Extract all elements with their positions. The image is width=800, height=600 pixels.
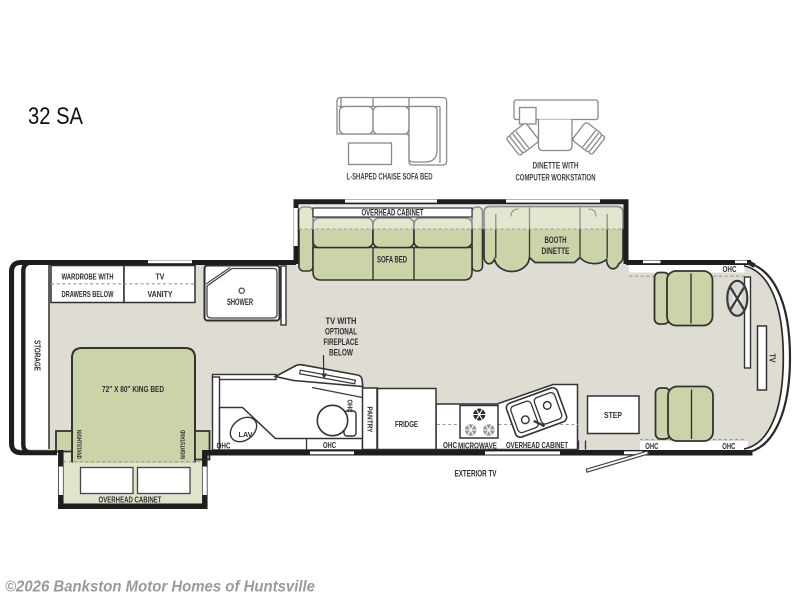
svg-text:FRIDGE: FRIDGE [395, 419, 418, 429]
svg-text:FIREPLACE: FIREPLACE [324, 337, 359, 347]
svg-text:LAV: LAV [239, 430, 253, 439]
svg-text:STEP: STEP [604, 410, 622, 420]
svg-text:OVERHEAD CABINET: OVERHEAD CABINET [362, 208, 424, 219]
svg-text:OHC: OHC [723, 264, 737, 274]
svg-text:DINETTE WITH: DINETTE WITH [533, 161, 579, 171]
svg-text:OVERHEAD CABINET: OVERHEAD CABINET [99, 495, 163, 505]
svg-text:OPTIONAL: OPTIONAL [325, 327, 357, 337]
svg-text:WARDROBE WITH: WARDROBE WITH [62, 271, 114, 281]
svg-text:TV WITH: TV WITH [326, 316, 357, 326]
svg-text:STORAGE: STORAGE [33, 340, 42, 372]
svg-text:TV: TV [768, 354, 777, 364]
svg-text:COMPUTER WORKSTATION: COMPUTER WORKSTATION [516, 173, 596, 183]
svg-text:SHOWER: SHOWER [227, 297, 253, 308]
svg-text:SOFA BED: SOFA BED [377, 255, 407, 265]
svg-text:EXTERIOR TV: EXTERIOR TV [455, 469, 497, 480]
svg-text:VANITY: VANITY [148, 289, 173, 299]
svg-text:L-SHAPED CHAISE SOFA BED: L-SHAPED CHAISE SOFA BED [347, 172, 433, 182]
svg-text:PANTRY: PANTRY [365, 407, 372, 433]
svg-text:OHC: OHC [722, 442, 735, 451]
svg-text:©2026 Bankston Motor Homes of: ©2026 Bankston Motor Homes of Huntsville [5, 579, 315, 596]
svg-text:OHC: OHC [443, 441, 457, 450]
svg-text:OHC: OHC [645, 442, 658, 451]
svg-text:72″ X 80″ KING BED: 72″ X 80″ KING BED [102, 384, 164, 394]
svg-text:OHC: OHC [346, 400, 355, 413]
svg-text:OVERHEAD CABINET: OVERHEAD CABINET [506, 440, 569, 450]
svg-text:OHC: OHC [323, 441, 336, 450]
svg-text:BELOW: BELOW [329, 348, 353, 358]
svg-text:NIGHTSTAND: NIGHTSTAND [180, 430, 187, 459]
svg-text:TV: TV [156, 271, 165, 281]
svg-text:OHC: OHC [217, 441, 231, 450]
svg-text:DRAWERS BELOW: DRAWERS BELOW [62, 289, 115, 299]
svg-text:MICROWAVE: MICROWAVE [458, 440, 497, 450]
svg-text:DINETTE: DINETTE [542, 246, 570, 256]
svg-text:NIGHTSTAND: NIGHTSTAND [75, 430, 82, 459]
svg-text:BOOTH: BOOTH [545, 235, 567, 245]
svg-text:32 SA: 32 SA [28, 103, 84, 130]
